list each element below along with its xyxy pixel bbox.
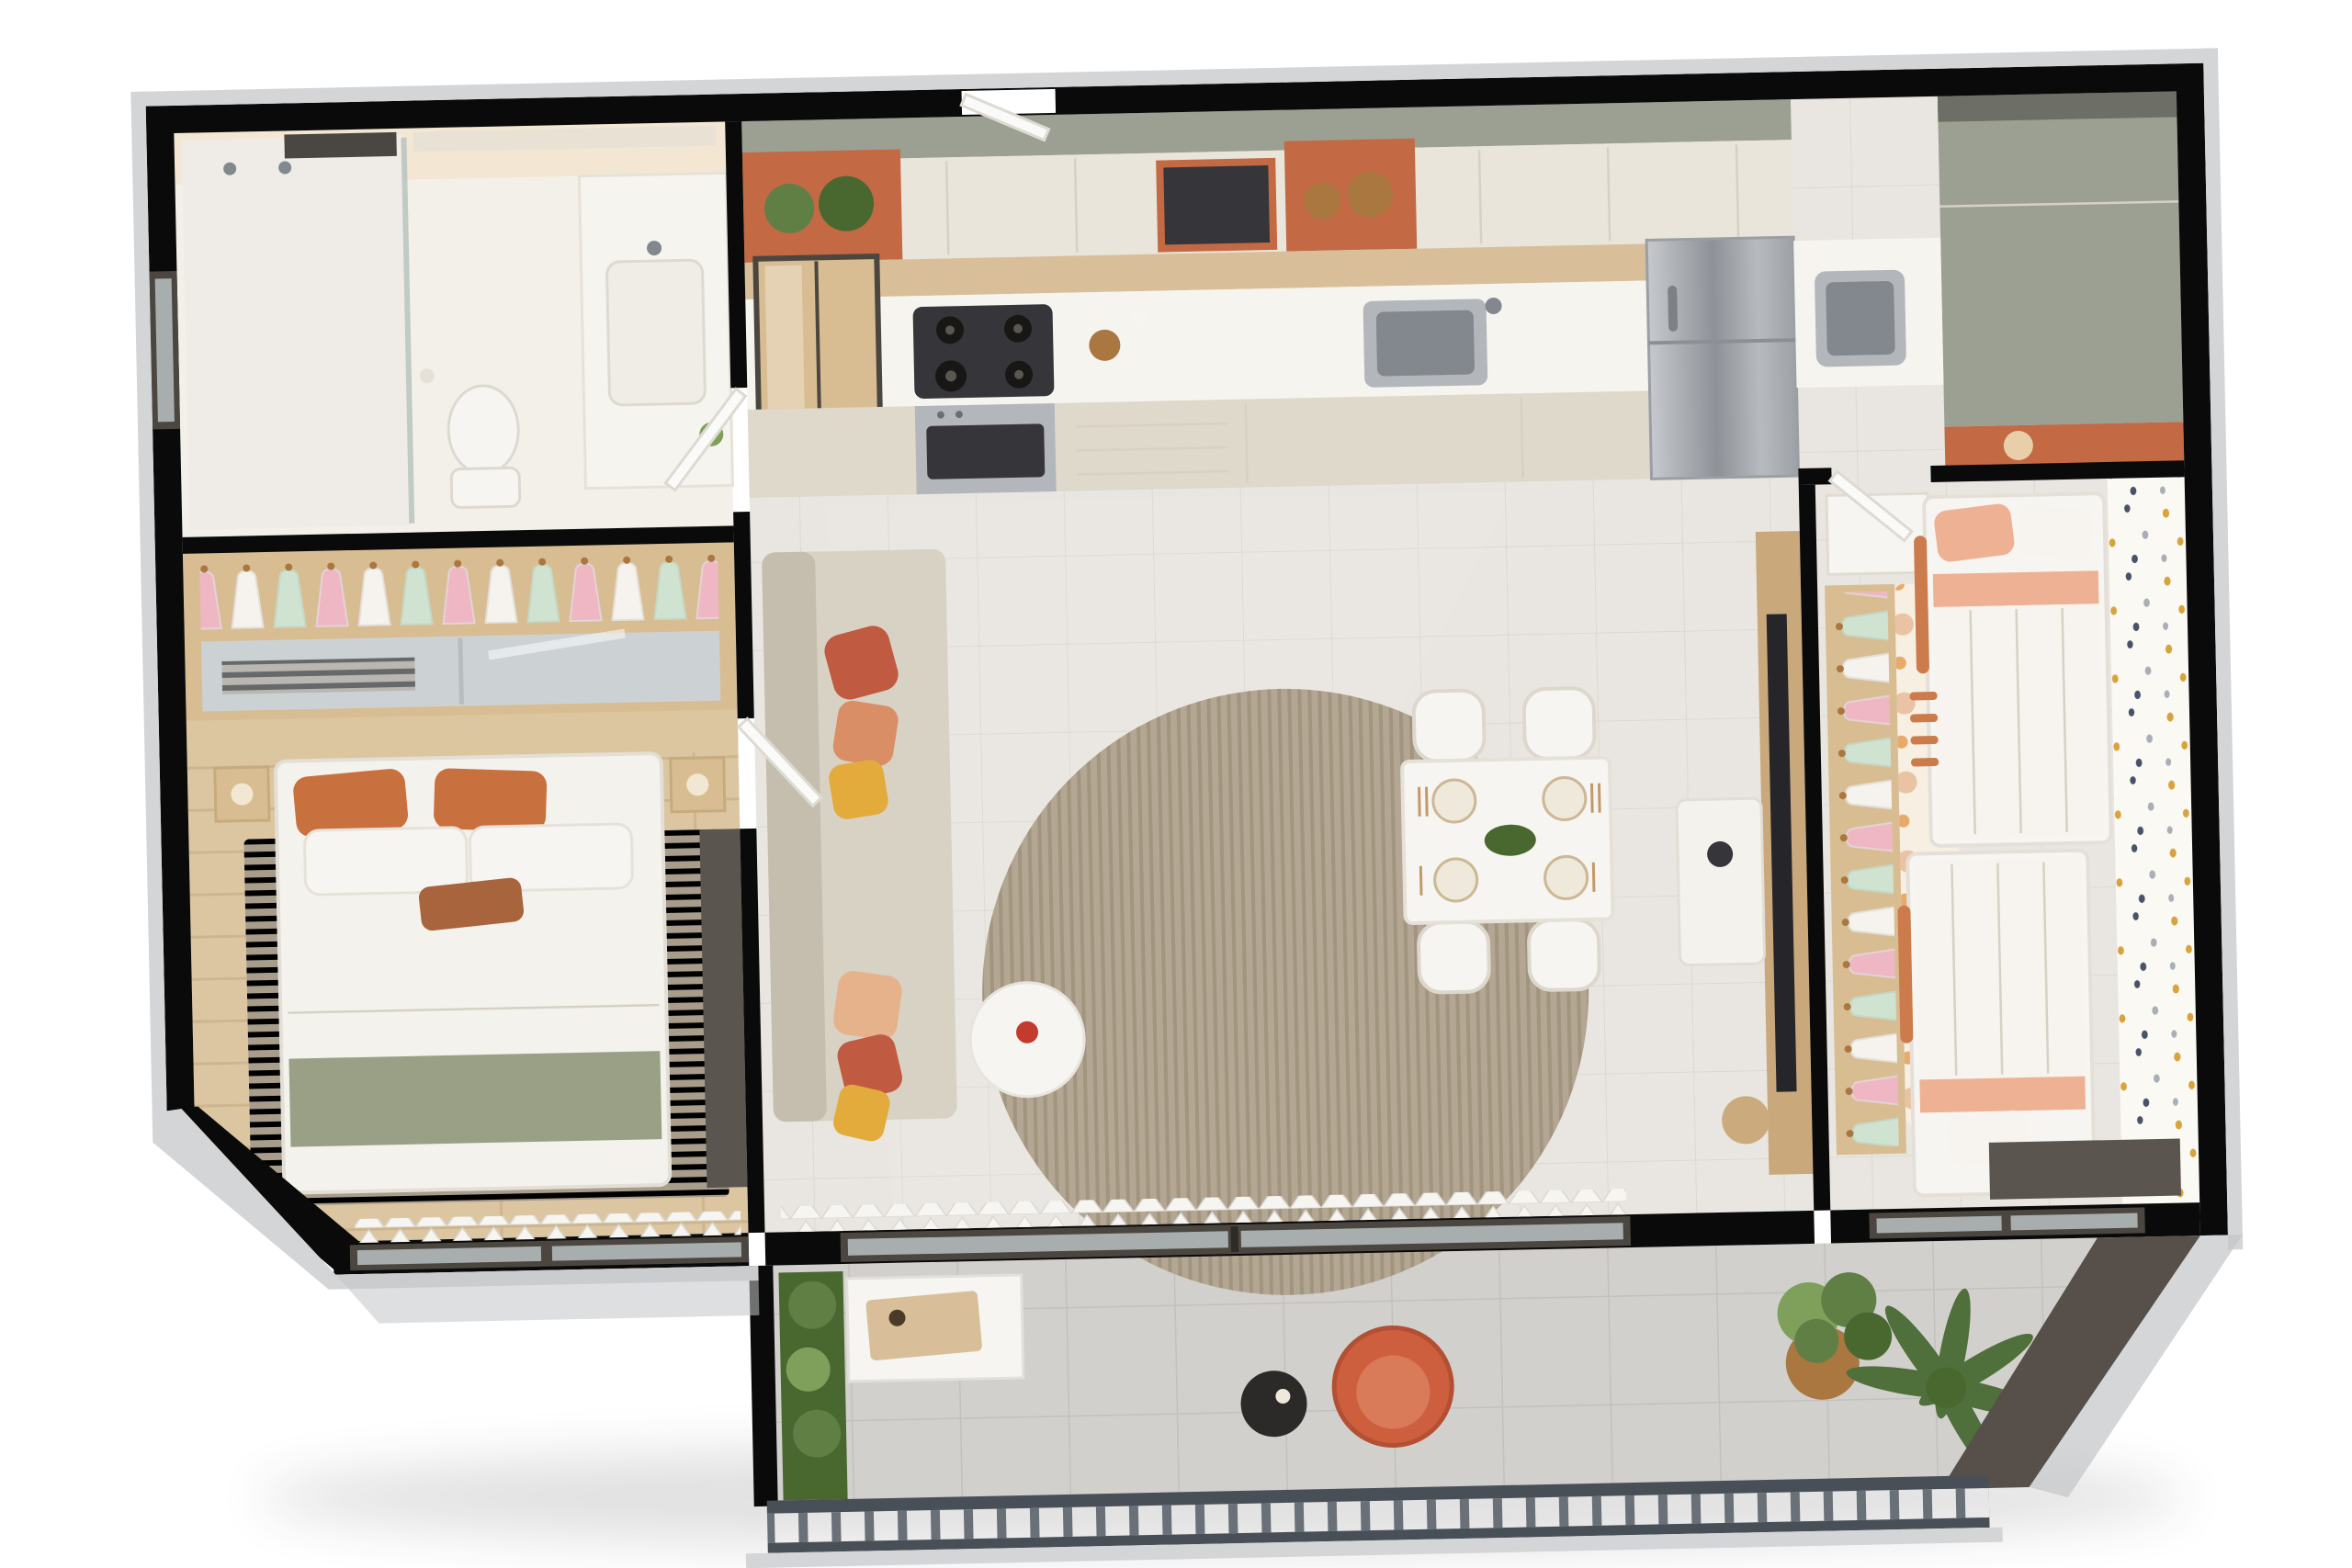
chair-3	[1419, 921, 1490, 993]
mirror-door-seam	[460, 638, 462, 705]
towel-shelf	[284, 132, 397, 159]
kids-blanket-band	[1933, 570, 2099, 607]
kids-bedroom	[1823, 477, 2199, 1210]
countertop	[745, 277, 1796, 410]
kids-window-glass-1	[1876, 1216, 2001, 1234]
chair-1	[1413, 690, 1485, 761]
pillow-orange-2	[434, 768, 548, 832]
floor-plan-stage	[0, 0, 2352, 1568]
kids-window-glass-2	[2010, 1213, 2137, 1230]
closet-hanging-clothes	[199, 552, 719, 635]
sage-quilt-runner	[288, 1051, 661, 1146]
kids-blanket-band-2	[1919, 1077, 2086, 1113]
kids-pillow-peach	[1933, 502, 2016, 563]
bedroom-wardrobe	[699, 829, 747, 1188]
kids-pillow-white	[2017, 505, 2093, 559]
laundry-cabinet-top-edge	[1938, 91, 2177, 121]
laundry-tall-cabinet	[1938, 91, 2183, 426]
pillow-yellow	[827, 758, 890, 821]
wall-laundry-kids-a	[1798, 468, 1831, 485]
toilet-tank	[451, 468, 520, 508]
plate-2	[1543, 777, 1586, 820]
mirror-reflection	[221, 658, 415, 694]
polka-dot-wallpaper	[2108, 477, 2200, 1204]
vanity-sink	[606, 260, 705, 405]
pillow-peach	[831, 969, 904, 1042]
fridge-handle	[1668, 286, 1678, 332]
master-closet	[183, 540, 738, 723]
shower-area	[181, 136, 410, 530]
plate-4	[1544, 856, 1588, 899]
kids-desk	[1989, 1139, 2181, 1200]
sink-basin	[1376, 310, 1475, 376]
cabinet-glass-shine	[764, 265, 804, 410]
kitchen	[741, 99, 1798, 498]
bedroom-exterior-sill	[335, 1266, 759, 1325]
pillow-white-1	[304, 828, 467, 896]
serving-board	[865, 1291, 982, 1361]
kids-hanging-clothes	[1832, 592, 1899, 1147]
pillow-striped	[831, 699, 900, 768]
media-console	[1677, 798, 1765, 965]
floor-plan-svg	[0, 0, 2352, 1568]
chair-4	[1529, 919, 1600, 991]
chair-2	[1523, 688, 1595, 760]
plate-3	[1434, 858, 1477, 901]
plate-1	[1432, 779, 1476, 822]
toilet-bowl	[447, 385, 519, 475]
refrigerator	[1646, 237, 1798, 479]
microwave	[1159, 162, 1273, 249]
slider-stile	[1234, 1226, 1235, 1252]
gas-cooktop	[912, 304, 1054, 399]
apartment-plan	[130, 48, 2248, 1568]
laundry-sink-basin	[1826, 281, 1895, 356]
bathroom-window-glass	[155, 278, 175, 422]
laundry-terracotta-accent	[1944, 422, 2184, 467]
oven-glass	[926, 423, 1045, 479]
